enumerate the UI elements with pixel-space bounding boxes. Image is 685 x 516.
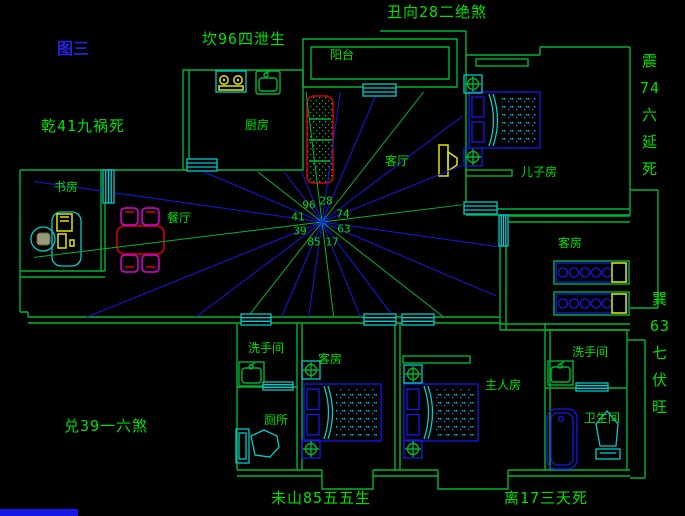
compass-number: 96 [302,200,315,211]
annotation-northeast: 丑向28二绝煞 [387,4,487,20]
room-label-balcony: 阳台 [330,49,354,62]
annotation-north: 坎96四泄生 [202,31,286,47]
annotation-northwest: 乾41九祸死 [41,118,125,134]
compass-number: 63 [337,224,350,235]
annotation-south-left: 未山85五五生 [271,490,371,506]
annotation-south-right: 离17三天死 [504,490,588,506]
room-label-bathroom: 卫生间 [584,412,620,425]
compass-number: 74 [336,209,349,220]
study-desk [31,212,81,266]
bathtub [547,409,577,469]
compass-number: 41 [291,212,304,223]
room-label-living: 客厅 [385,155,409,168]
bottom-blue-strip [0,509,78,516]
compass-number: 39 [293,226,306,237]
kitchen-sink [256,71,280,94]
room-label-son: 儿子房 [521,166,557,179]
stove [216,71,246,92]
room-label-guest-east: 客房 [558,237,582,250]
shelf [466,170,512,176]
annotation-southeast: 巽 63 七 伏 旺 [643,286,677,421]
toilet-wc [236,429,279,463]
dining-table [117,208,164,272]
annotation-east: 震 74 六 延 死 [633,48,667,183]
room-label-kitchen: 厨房 [245,119,269,132]
compass-number: 85 [307,237,320,248]
room-label-washroom-left: 洗手间 [248,342,284,355]
cad-canvas[interactable]: 图三 坎96四泄生 丑向28二绝煞 乾41九祸死 震 74 六 延 死 巽 63… [0,0,685,516]
room-label-master: 主人房 [485,379,521,392]
room-label-washroom-right: 洗手间 [572,346,608,359]
figure-title: 图三 [57,42,89,55]
room-label-study: 书房 [54,181,78,194]
shelf [403,356,470,363]
annotation-west: 兑39一六煞 [64,418,148,434]
floorplan-drawing [0,0,685,516]
room-label-guest-south: 客房 [318,353,342,366]
room-label-toilet: 厕所 [264,414,288,427]
compass-number: 17 [325,237,338,248]
shelf [476,59,528,66]
compass-number: 28 [319,196,332,207]
room-label-dining: 餐厅 [167,212,191,225]
